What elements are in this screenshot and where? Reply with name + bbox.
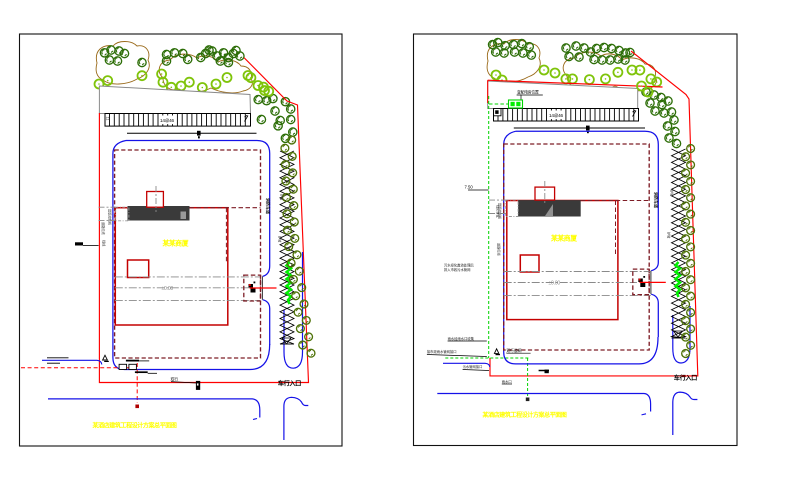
svg-text:污水管网接口: 污水管网接口: [463, 364, 483, 369]
svg-text:消防车道: 消防车道: [266, 198, 272, 214]
svg-text:雨水口: 雨水口: [502, 379, 512, 384]
svg-text:11: 11: [105, 117, 109, 121]
svg-text:护坡: 护坡: [278, 236, 283, 243]
svg-text:护坡: 护坡: [670, 190, 675, 197]
svg-text:变配电房位置: 变配电房位置: [517, 90, 539, 95]
svg-text:建筑控制线: 建筑控制线: [498, 203, 503, 220]
svg-text:某某商厦: 某某商厦: [551, 234, 577, 243]
svg-text:±0.00: ±0.00: [162, 286, 174, 292]
svg-text:±0.00: ±0.00: [549, 281, 561, 287]
svg-text:接市政雨水管网接口: 接市政雨水管网接口: [427, 349, 457, 354]
svg-text:14@46: 14@46: [160, 118, 175, 123]
svg-text:车行入口: 车行入口: [278, 380, 301, 388]
svg-text:车行入口: 车行入口: [674, 374, 697, 382]
svg-text:建筑控制线: 建筑控制线: [108, 209, 113, 226]
svg-text:道路红线: 道路红线: [101, 222, 106, 236]
svg-text:消防车道: 消防车道: [654, 192, 660, 208]
svg-text:护坡: 护坡: [667, 232, 672, 239]
svg-text:某酒店建筑工程设计方案总平面图: 某酒店建筑工程设计方案总平面图: [483, 411, 567, 419]
svg-text:某某商厦: 某某商厦: [163, 239, 189, 248]
svg-text:污水经化粪池处理后: 污水经化粪池处理后: [444, 263, 474, 268]
svg-text:排入市政污水管网: 排入市政污水管网: [444, 267, 471, 272]
svg-text:道路红线: 道路红线: [497, 243, 502, 257]
svg-text:绿线: 绿线: [102, 240, 107, 247]
svg-text:护坡: 护坡: [280, 194, 285, 201]
svg-text:雨水经雨水口收集: 雨水经雨水口收集: [448, 336, 475, 341]
svg-text:双行道闸: 双行道闸: [506, 348, 521, 353]
svg-text:双行: 双行: [171, 377, 179, 382]
svg-text:7.50: 7.50: [465, 185, 474, 190]
svg-text:某酒店建筑工程设计方案总平面图: 某酒店建筑工程设计方案总平面图: [93, 421, 177, 429]
svg-text:14@46: 14@46: [549, 113, 564, 118]
